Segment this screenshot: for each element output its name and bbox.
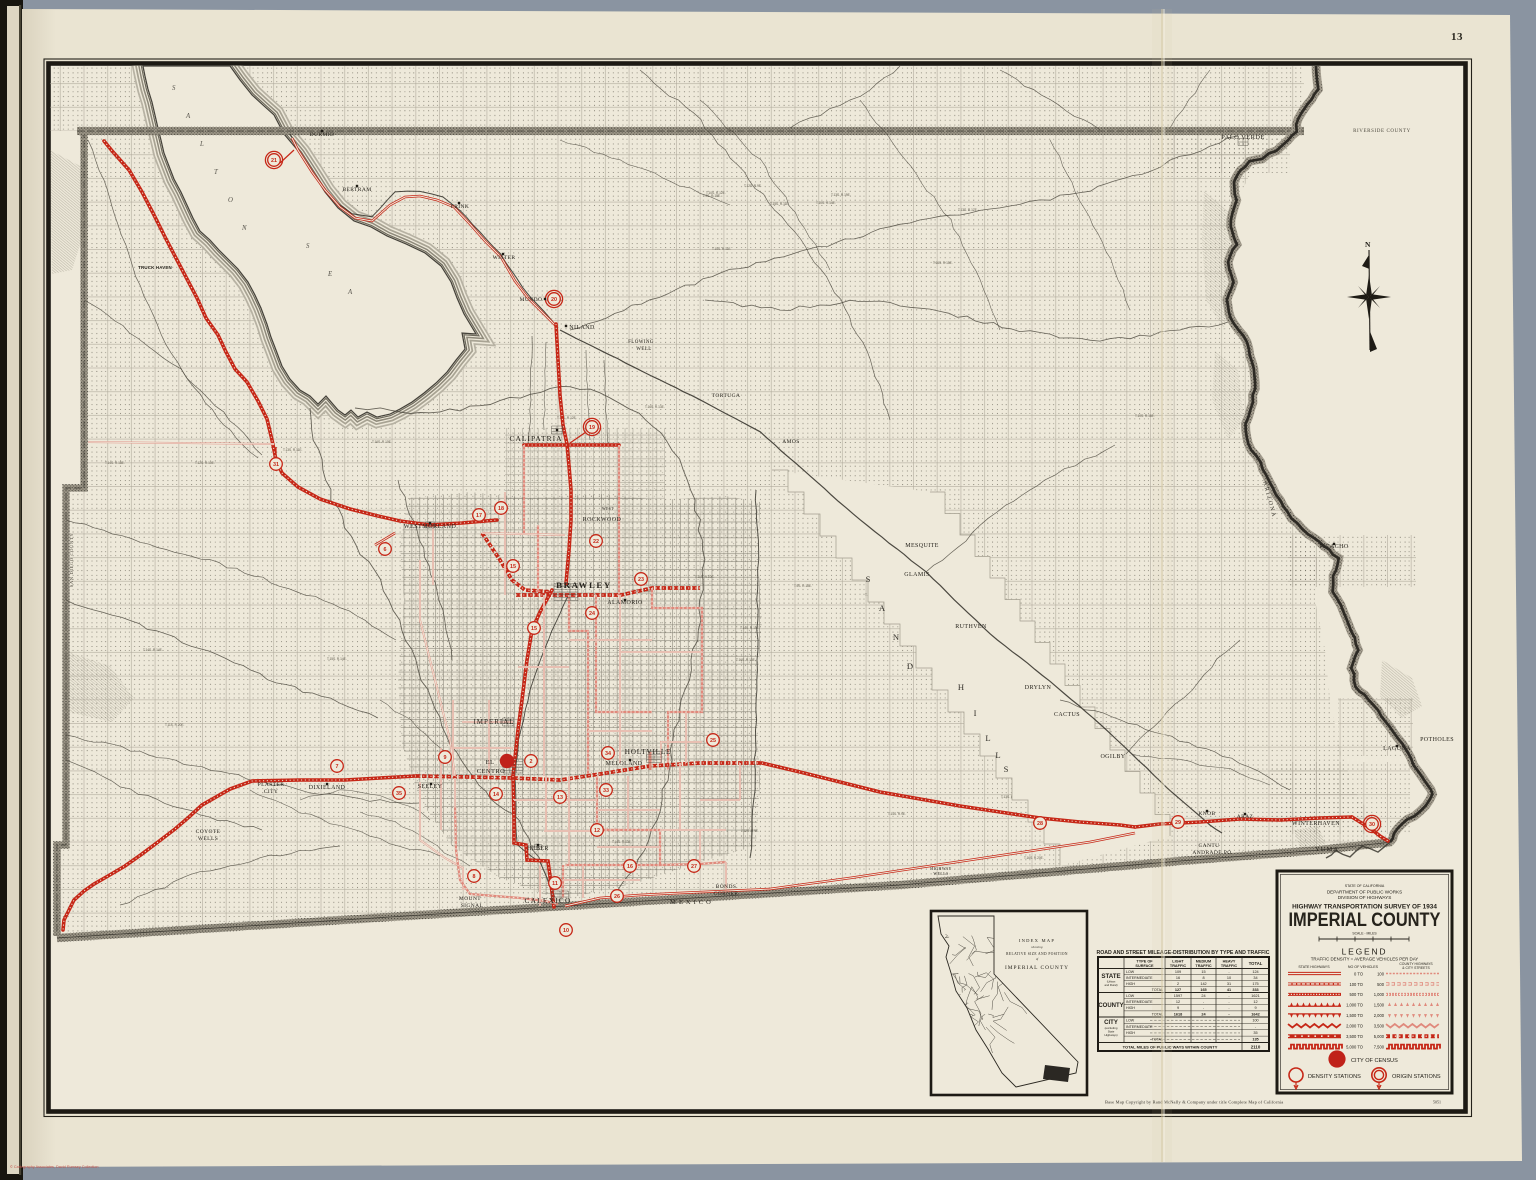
svg-text:T.14S. R.13E.: T.14S. R.13E. (612, 840, 632, 844)
svg-text:INDEX MAP: INDEX MAP (1019, 938, 1055, 943)
svg-text:30: 30 (1369, 822, 1375, 828)
svg-text:TRUCK HAVEN: TRUCK HAVEN (138, 265, 172, 270)
svg-text:T.11S. R.20E.: T.11S. R.20E. (165, 723, 185, 727)
svg-text:24: 24 (589, 611, 595, 617)
svg-text:T.16S. R.13E.: T.16S. R.13E. (736, 658, 756, 662)
svg-text:2,000: 2,000 (1374, 1013, 1385, 1018)
svg-text:WELLS: WELLS (933, 871, 948, 876)
svg-text:Highways): Highways) (1104, 1033, 1117, 1037)
svg-text:INTERMEDIATE: INTERMEDIATE (1126, 1000, 1153, 1004)
svg-text:CALEXICO: CALEXICO (525, 896, 572, 905)
svg-text:RELATIVE SIZE AND POSITION: RELATIVE SIZE AND POSITION (1006, 952, 1068, 956)
svg-text:BRAWLEY: BRAWLEY (556, 580, 612, 590)
svg-text:27: 27 (691, 864, 697, 870)
svg-text:2,000 TO: 2,000 TO (1346, 1024, 1363, 1029)
svg-text:OGILBY: OGILBY (1100, 754, 1125, 760)
svg-text:TYPE OF: TYPE OF (1136, 960, 1153, 964)
svg-text:AMOS: AMOS (782, 439, 800, 445)
svg-text:Base Map Copyright by Rand McN: Base Map Copyright by Rand McNally & Com… (1105, 1100, 1283, 1105)
svg-text:DRYLYN: DRYLYN (1025, 685, 1052, 691)
svg-text:16: 16 (627, 864, 633, 870)
svg-text:29: 29 (1175, 820, 1181, 826)
svg-text:L: L (985, 733, 990, 743)
svg-text:S: S (172, 85, 176, 92)
svg-text:12: 12 (1176, 1000, 1180, 1004)
svg-text:165: 165 (1200, 988, 1206, 992)
svg-text:and Rural): and Rural) (1104, 983, 1117, 987)
svg-text:100: 100 (1377, 971, 1385, 976)
svg-text:LEGEND: LEGEND (1342, 947, 1388, 957)
svg-text:13: 13 (557, 795, 563, 801)
svg-text:2: 2 (530, 759, 533, 765)
svg-text:LOW: LOW (1126, 994, 1135, 998)
svg-text:9: 9 (1254, 1006, 1256, 1010)
svg-text:31: 31 (1227, 982, 1231, 986)
svg-text:T.15S. R.11E.: T.15S. R.11E. (770, 202, 790, 206)
svg-text:ANDRADE PO: ANDRADE PO (1192, 850, 1231, 856)
svg-text:RUTHVEN: RUTHVEN (955, 624, 987, 630)
svg-text:35: 35 (396, 791, 402, 797)
svg-text:MESQUITE: MESQUITE (905, 543, 939, 549)
svg-text:BERTRAM: BERTRAM (342, 187, 371, 193)
svg-text:GLAMIS: GLAMIS (904, 572, 929, 578)
svg-text:8: 8 (1202, 976, 1204, 980)
svg-text:2110: 2110 (1251, 1044, 1261, 1049)
svg-text:L: L (995, 750, 1000, 760)
svg-text:HEAVY: HEAVY (1223, 960, 1236, 964)
svg-text:LOW: LOW (1126, 1018, 1135, 1022)
svg-text:MUNDO: MUNDO (520, 297, 543, 303)
svg-text:© Cartography Associates, Davi: © Cartography Associates, David Rumsey C… (10, 1165, 98, 1169)
svg-text:1618: 1618 (1174, 1012, 1182, 1016)
svg-text:41: 41 (1227, 988, 1231, 992)
svg-text:10: 10 (1227, 976, 1231, 980)
svg-text:D: D (907, 661, 913, 671)
svg-text:1597: 1597 (1174, 994, 1182, 998)
svg-text:SCALE - MILES: SCALE - MILES (1352, 932, 1377, 936)
svg-text:9: 9 (444, 755, 447, 761)
svg-text:SAN DIEGO COUNTY: SAN DIEGO COUNTY (69, 533, 74, 588)
svg-text:1,500: 1,500 (1374, 1003, 1385, 1008)
svg-text:1,500 TO: 1,500 TO (1346, 1013, 1363, 1018)
svg-text:13: 13 (1451, 31, 1463, 43)
svg-text:INTERMEDIATE: INTERMEDIATE (1126, 976, 1153, 980)
svg-text:6: 6 (384, 547, 387, 553)
svg-text:T.10S. R.16E.: T.10S. R.16E. (1135, 414, 1155, 418)
svg-text:NO OF VEHICLES: NO OF VEHICLES (1348, 965, 1379, 969)
svg-text:31: 31 (273, 462, 279, 468)
svg-text:CACTUS: CACTUS (1054, 712, 1080, 718)
svg-text:135: 135 (1252, 1038, 1258, 1042)
svg-text:WELLS: WELLS (198, 836, 218, 842)
svg-text:3,500: 3,500 (1374, 1024, 1385, 1029)
svg-text:COUNTY: COUNTY (1098, 1003, 1123, 1009)
svg-text:8: 8 (473, 874, 476, 880)
svg-text:26: 26 (614, 894, 620, 900)
svg-text:9: 9 (1177, 1006, 1179, 1010)
svg-text:25: 25 (710, 738, 716, 744)
svg-text:10: 10 (563, 928, 569, 934)
svg-text:15: 15 (531, 626, 537, 632)
svg-text:EL: EL (486, 759, 495, 766)
svg-text:5,000: 5,000 (1374, 1034, 1385, 1039)
svg-text:333: 333 (1252, 988, 1258, 992)
svg-text:T.16S. R.13E.: T.16S. R.13E. (645, 405, 665, 409)
svg-text:INTERMEDIATE: INTERMEDIATE (1126, 1025, 1153, 1029)
svg-text:PLASTER: PLASTER (258, 782, 285, 788)
svg-text:BONDS: BONDS (716, 884, 737, 890)
svg-text:23: 23 (638, 577, 644, 583)
svg-text:124: 124 (1252, 970, 1258, 974)
svg-text:TRAFFIC: TRAFFIC (1221, 964, 1237, 968)
svg-text:T.15S. R.14E.: T.15S. R.14E. (327, 657, 347, 661)
svg-text:CITY: CITY (264, 789, 278, 795)
svg-text:A: A (879, 603, 886, 613)
svg-text:109: 109 (1175, 970, 1181, 974)
svg-text:HIGH: HIGH (1126, 1031, 1135, 1035)
svg-text:A: A (347, 289, 353, 296)
svg-text:YUMA: YUMA (1315, 846, 1339, 853)
svg-text:CENTRO: CENTRO (477, 768, 505, 775)
svg-text:ORIGIN STATIONS: ORIGIN STATIONS (1392, 1074, 1441, 1080)
svg-text:S: S (1004, 764, 1009, 774)
svg-text:N: N (241, 225, 247, 232)
svg-text:T.10S. R.14E.: T.10S. R.14E. (816, 201, 836, 205)
svg-text:DEPARTMENT OF PUBLIC WORKS: DEPARTMENT OF PUBLIC WORKS (1327, 890, 1402, 895)
svg-text:28: 28 (1037, 821, 1043, 827)
svg-text:CORNER: CORNER (714, 891, 739, 897)
svg-text:DIXIELAND: DIXIELAND (309, 785, 346, 791)
svg-text:12: 12 (594, 828, 600, 834)
svg-text:H: H (958, 682, 964, 692)
svg-text:HEBER: HEBER (527, 846, 549, 852)
svg-text:142: 142 (1200, 982, 1206, 986)
svg-text:12: 12 (1253, 1000, 1257, 1004)
svg-text:TRAFFIC: TRAFFIC (1170, 964, 1186, 968)
svg-text:LIGHT: LIGHT (1172, 960, 1184, 964)
svg-text:NILAND: NILAND (569, 325, 595, 331)
svg-text:O: O (228, 197, 233, 204)
svg-text:FLOWING: FLOWING (628, 340, 654, 345)
svg-text:IMPERIAL COUNTY: IMPERIAL COUNTY (1289, 910, 1441, 931)
svg-text:5,000 TO: 5,000 TO (1346, 1044, 1363, 1049)
svg-text:TOTAL: TOTAL (1249, 961, 1263, 966)
svg-text:COYOTE: COYOTE (196, 829, 221, 835)
svg-text:LOW: LOW (1126, 970, 1135, 974)
svg-text:1,000 TO: 1,000 TO (1346, 1003, 1363, 1008)
svg-text:T.14S. R.14E.: T.14S. R.14E. (143, 648, 163, 652)
svg-text:L: L (199, 141, 204, 148)
svg-text:SURFACE: SURFACE (1135, 964, 1154, 968)
svg-text:33: 33 (603, 788, 609, 794)
svg-text:22: 22 (593, 539, 599, 545)
svg-text:7,500: 7,500 (1374, 1044, 1385, 1049)
svg-text:E: E (327, 271, 333, 278)
svg-text:T.16S. R.15E.: T.16S. R.15E. (933, 261, 953, 265)
svg-text:showing: showing (1031, 945, 1043, 949)
svg-text:0 TO: 0 TO (1354, 971, 1363, 976)
svg-text:FRINK: FRINK (451, 204, 470, 210)
svg-text:CALIPATRIA: CALIPATRIA (509, 434, 562, 443)
svg-text:T.9S. R.18E.: T.9S. R.18E. (794, 584, 812, 588)
svg-text:15: 15 (510, 564, 516, 570)
svg-text:T.14S. R.18E.: T.14S. R.18E. (105, 461, 125, 465)
svg-text:SIGNAL: SIGNAL (461, 903, 484, 909)
svg-text:PALO VERDE: PALO VERDE (1221, 134, 1265, 141)
svg-text:T.15S. R.12E.: T.15S. R.12E. (557, 416, 577, 420)
svg-text:34: 34 (605, 751, 611, 757)
svg-text:100 TO: 100 TO (1349, 982, 1363, 987)
svg-text:T.14S. R.9E.: T.14S. R.9E. (888, 812, 906, 816)
svg-text:5051: 5051 (1433, 1100, 1441, 1105)
svg-text:MELOLAND: MELOLAND (606, 761, 643, 767)
svg-text:7: 7 (336, 764, 339, 770)
svg-text:DIVISION OF HIGHWAYS: DIVISION OF HIGHWAYS (1338, 895, 1392, 900)
svg-text:TORTUGA: TORTUGA (712, 393, 741, 399)
svg-text:T.16S. R.20E.: T.16S. R.20E. (1024, 856, 1044, 860)
svg-text:T.11S. R.10E.: T.11S. R.10E. (695, 575, 715, 579)
svg-text:3,500 TO: 3,500 TO (1346, 1034, 1363, 1039)
svg-text:TRAFFIC: TRAFFIC (1195, 964, 1211, 968)
svg-text:20: 20 (551, 297, 557, 303)
svg-text:ROCKWOOD: ROCKWOOD (583, 517, 622, 523)
svg-text:2: 2 (1177, 982, 1179, 986)
svg-text:N: N (893, 632, 900, 642)
svg-text:CITY OF CENSUS: CITY OF CENSUS (1351, 1058, 1398, 1064)
svg-text:175: 175 (1252, 982, 1258, 986)
svg-text:WELL: WELL (636, 347, 651, 352)
svg-text:1,000: 1,000 (1374, 992, 1385, 997)
svg-text:11: 11 (552, 881, 558, 887)
svg-text:T.16S. R.10E.: T.16S. R.10E. (372, 440, 392, 444)
svg-text:STATE OF CALIFORNIA: STATE OF CALIFORNIA (1345, 884, 1385, 888)
svg-text:T.12S. R.9E.: T.12S. R.9E. (741, 829, 759, 833)
svg-text:HIGH: HIGH (1126, 1006, 1135, 1010)
svg-text:T.13S. R.11E.: T.13S. R.11E. (283, 448, 303, 452)
svg-text:16: 16 (1176, 976, 1180, 980)
svg-text:35: 35 (1253, 1031, 1257, 1035)
svg-text:17: 17 (476, 513, 482, 519)
svg-text:T.15S. R.11E.: T.15S. R.11E. (712, 247, 732, 251)
svg-text:A: A (185, 113, 191, 120)
svg-text:WINTERHAVEN: WINTERHAVEN (1292, 821, 1340, 827)
svg-text:CANTU: CANTU (1199, 843, 1220, 849)
svg-text:100: 100 (1252, 1018, 1258, 1022)
svg-text:500 TO: 500 TO (1349, 992, 1363, 997)
svg-text:18: 18 (498, 506, 504, 512)
svg-text:I: I (974, 708, 977, 718)
svg-text:S: S (866, 574, 871, 584)
svg-text:15: 15 (1201, 970, 1205, 974)
svg-text:STATE HIGHWAYS: STATE HIGHWAYS (1298, 965, 1330, 969)
svg-text:N: N (1365, 240, 1371, 249)
svg-text:MEXICO: MEXICO (670, 899, 714, 906)
svg-text:14: 14 (493, 792, 499, 798)
svg-text:DURMID: DURMID (310, 132, 335, 138)
svg-text:MOUNT: MOUNT (459, 896, 481, 902)
svg-text:WISTER: WISTER (493, 255, 516, 261)
svg-text:34: 34 (1253, 976, 1257, 980)
svg-text:19: 19 (589, 425, 595, 431)
svg-text:127: 127 (1175, 988, 1181, 992)
svg-text:500: 500 (1377, 982, 1385, 987)
svg-text:IMPERIAL COUNTY: IMPERIAL COUNTY (1005, 965, 1069, 971)
svg-text:S: S (306, 243, 310, 250)
svg-text:DENSITY STATIONS: DENSITY STATIONS (1308, 1074, 1361, 1080)
svg-text:21: 21 (271, 158, 277, 164)
svg-text:T.12S. R.10E.: T.12S. R.10E. (195, 461, 215, 465)
svg-text:24: 24 (1201, 994, 1205, 998)
svg-text:TRAFFIC DENSITY = AVERAGE VEHI: TRAFFIC DENSITY = AVERAGE VEHICLES PER D… (1311, 957, 1419, 962)
svg-text:ROAD AND STREET MILEAGE-DISTRI: ROAD AND STREET MILEAGE-DISTRIBUTION BY … (1096, 950, 1269, 956)
svg-text:HOLTVILLE: HOLTVILLE (625, 748, 671, 756)
svg-text:1621: 1621 (1251, 994, 1259, 998)
svg-text:POTHOLES: POTHOLES (1420, 737, 1454, 743)
svg-text:& CITY STREETS: & CITY STREETS (1402, 966, 1430, 970)
svg-text:MEDIUM: MEDIUM (1196, 960, 1211, 964)
svg-text:IMPERIAL: IMPERIAL (473, 718, 514, 726)
svg-text:RIVERSIDE COUNTY: RIVERSIDE COUNTY (1353, 129, 1411, 134)
svg-text:HIGH: HIGH (1126, 982, 1135, 986)
svg-text:T.13S. R.19E.: T.13S. R.19E. (831, 193, 851, 197)
svg-text:1642: 1642 (1251, 1012, 1259, 1016)
svg-text:WEST: WEST (602, 507, 614, 511)
